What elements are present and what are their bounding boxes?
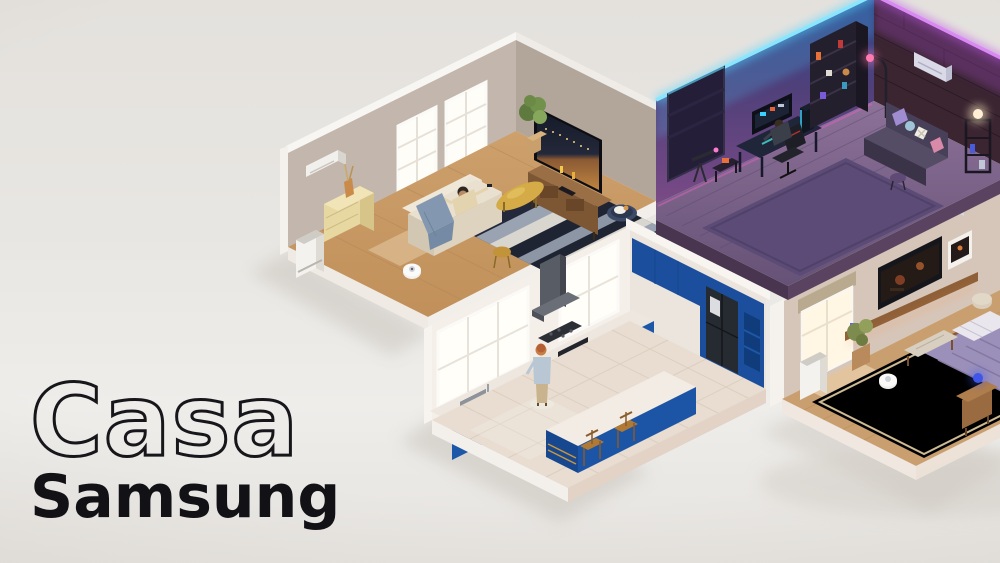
logo-line-casa: Casa [30,380,340,463]
wall-cut-edge [770,299,784,407]
wall-cut-edge [280,146,288,255]
robot-vacuum [403,264,421,280]
logo-line-samsung: Samsung [30,467,340,527]
wall-cut-edge [424,325,432,424]
open-shelves [744,312,760,372]
pouf [972,293,992,309]
logo: Casa Samsung [30,380,340,527]
casa-samsung-hero: Casa Samsung [0,0,1000,563]
robot-vacuum [879,374,897,390]
